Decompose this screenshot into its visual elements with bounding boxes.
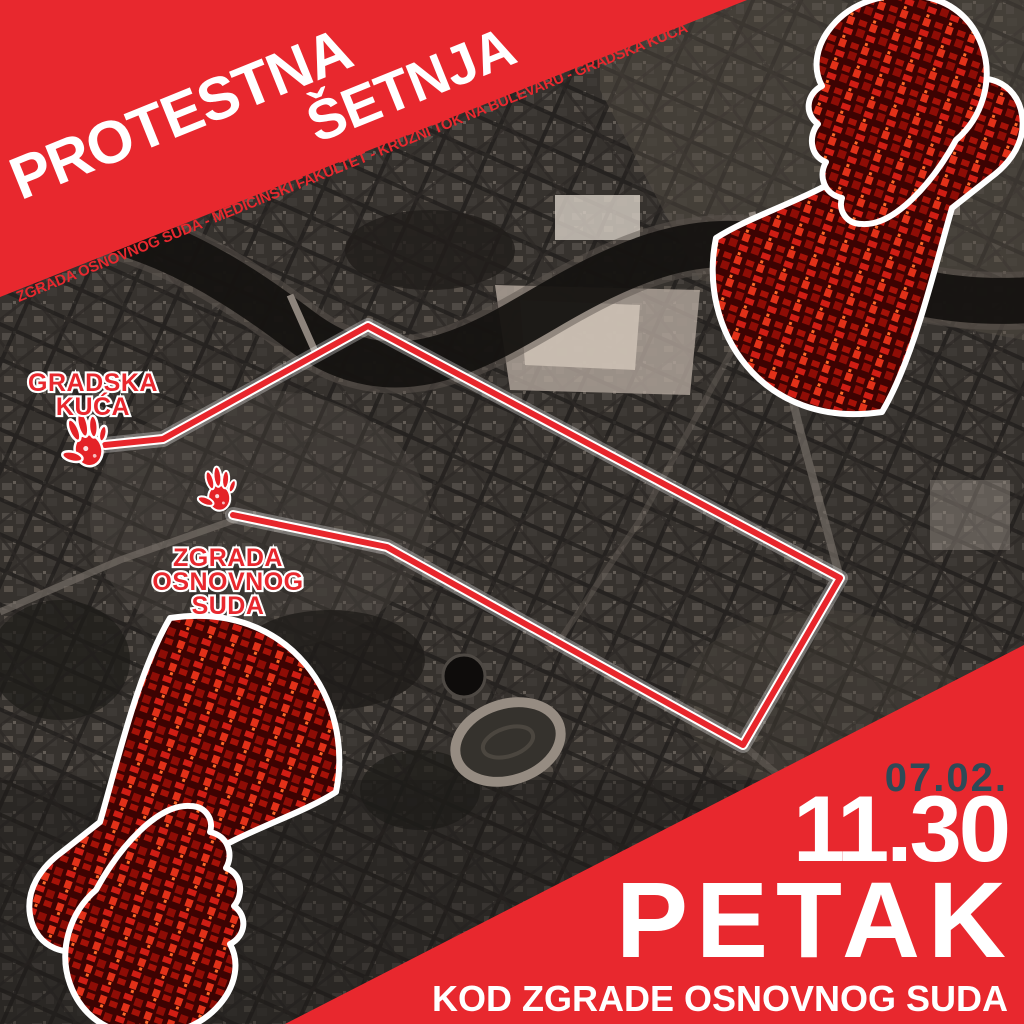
svg-text:KUĆA: KUĆA [56, 391, 130, 421]
event-day: PETAK [616, 868, 1014, 972]
reservoir [443, 655, 485, 697]
park-area [345, 210, 515, 290]
event-location: KOD ZGRADE OSNOVNOG SUDA [432, 978, 1008, 1020]
svg-text:SUDA: SUDA [192, 592, 265, 620]
protest-poster: GRADSKA KUĆA ZGRADA OSNOVNOG SUDA PROTES… [0, 0, 1024, 1024]
